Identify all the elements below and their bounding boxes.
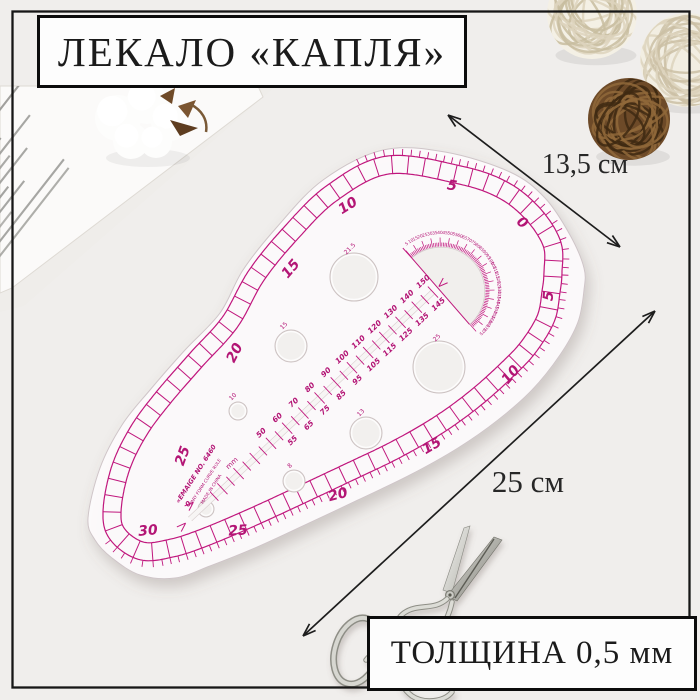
svg-text:30: 30	[138, 522, 159, 540]
width-dimension-label: 13,5 см	[518, 149, 652, 181]
thickness-label: ТОЛЩИНА 0,5 мм	[391, 635, 674, 672]
photo-scene: 51015202505101520253021.5152513108510152…	[0, 0, 700, 700]
product-photo: 51015202505101520253021.5152513108510152…	[0, 0, 700, 700]
wicker-ball-white-1	[540, 0, 645, 65]
title-box: ЛЕКАЛО «КАПЛЯ»	[37, 15, 467, 88]
length-dimension-label: 25 см	[468, 464, 588, 500]
thickness-label-box: ТОЛЩИНА 0,5 мм	[367, 616, 697, 691]
svg-text:25: 25	[228, 522, 249, 539]
svg-text:5: 5	[541, 290, 558, 301]
page-title: ЛЕКАЛО «КАПЛЯ»	[58, 28, 446, 76]
